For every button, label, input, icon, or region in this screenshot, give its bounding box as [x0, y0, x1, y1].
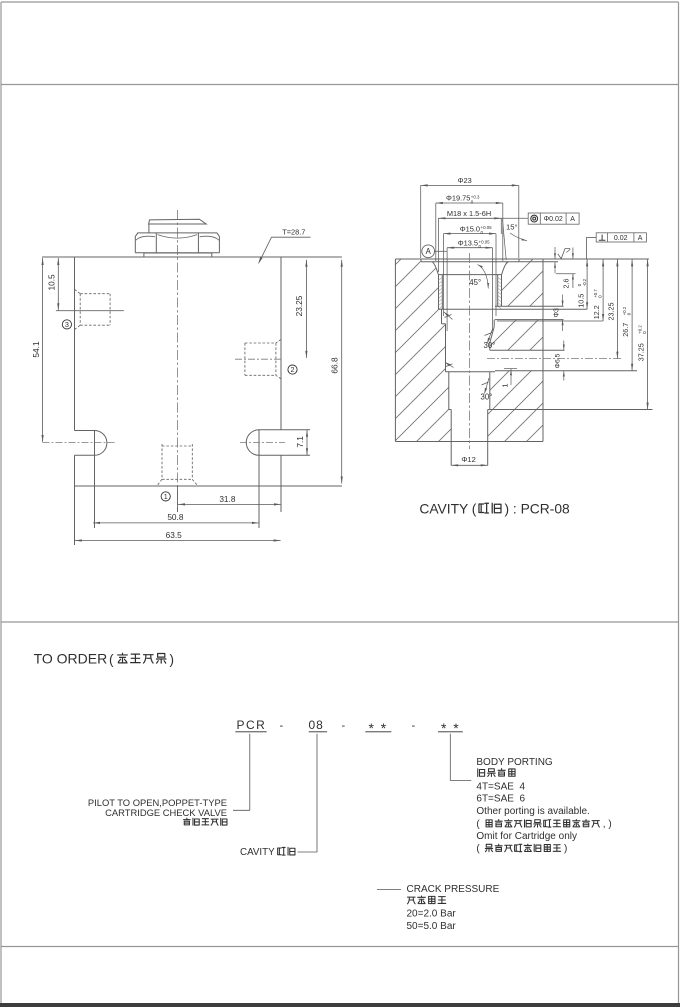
svg-text:30°: 30° [484, 341, 496, 350]
svg-text:) : PCR-08: ) : PCR-08 [505, 502, 570, 517]
svg-text:2.6: 2.6 [561, 279, 570, 289]
svg-text:CAVITY (: CAVITY ( [419, 502, 476, 517]
svg-text:-0.2: -0.2 [582, 278, 587, 286]
svg-text:2: 2 [291, 365, 295, 374]
svg-text:CARTRIDGE CHECK VALVE: CARTRIDGE CHECK VALVE [105, 807, 227, 818]
svg-text:Φ3: Φ3 [553, 308, 560, 318]
svg-text:1: 1 [164, 492, 168, 501]
svg-text:66.8: 66.8 [330, 357, 340, 374]
svg-text:12.2: 12.2 [592, 305, 601, 319]
svg-text:Φ19.75: Φ19.75 [446, 194, 470, 203]
svg-text:A: A [426, 247, 432, 256]
svg-text:A: A [570, 216, 575, 223]
svg-text:Φ0.02: Φ0.02 [544, 216, 563, 223]
svg-text:10.5: 10.5 [576, 294, 585, 308]
svg-text:*: * [441, 720, 447, 736]
svg-text:50=5.0 Bar: 50=5.0 Bar [407, 921, 457, 932]
svg-text:PCR: PCR [237, 718, 267, 732]
svg-text:23.25: 23.25 [294, 295, 304, 316]
svg-text:15°: 15° [506, 223, 517, 232]
svg-text:1: 1 [501, 384, 510, 388]
svg-text:30°: 30° [481, 393, 493, 402]
svg-text:CRACK PRESSURE: CRACK PRESSURE [407, 884, 500, 895]
svg-text:3: 3 [65, 320, 69, 329]
svg-text:Omit for Cartridge only: Omit for Cartridge only [476, 831, 577, 842]
svg-text:Other porting is available.: Other porting is available. [476, 806, 589, 817]
svg-text:A: A [638, 235, 643, 242]
svg-text:-: - [342, 720, 346, 732]
svg-text:*: * [453, 720, 459, 736]
svg-text:7.1: 7.1 [295, 436, 305, 448]
svg-text:): ) [564, 843, 567, 854]
svg-text:Φ23: Φ23 [458, 176, 472, 185]
svg-text:10.5: 10.5 [47, 274, 57, 291]
svg-text:BODY PORTING: BODY PORTING [476, 757, 553, 768]
svg-text:CAVITY: CAVITY [240, 847, 275, 858]
svg-text:63.5: 63.5 [166, 530, 183, 540]
svg-text:*: * [381, 720, 387, 736]
svg-text:, ): , ) [603, 819, 612, 830]
svg-text:26.7: 26.7 [621, 323, 630, 337]
svg-text:*: * [369, 720, 375, 736]
svg-text:TO ORDER: TO ORDER [34, 651, 108, 667]
svg-text:): ) [170, 652, 175, 667]
svg-text:-: - [412, 720, 416, 732]
svg-text:0.02: 0.02 [614, 235, 628, 242]
svg-text:08: 08 [309, 718, 324, 732]
svg-text:23.25: 23.25 [606, 303, 615, 321]
svg-text:37.25: 37.25 [637, 343, 646, 361]
svg-text:M18 x 1.5-6H: M18 x 1.5-6H [447, 209, 491, 218]
svg-text:Φ12: Φ12 [461, 455, 476, 464]
svg-text:-: - [280, 720, 284, 732]
svg-text:Φ13.5: Φ13.5 [458, 239, 478, 248]
svg-text:(: ( [109, 652, 114, 667]
svg-text:31.8: 31.8 [219, 494, 236, 504]
svg-text:20=2.0 Bar: 20=2.0 Bar [407, 909, 457, 920]
svg-text:Φ15.0: Φ15.0 [460, 224, 480, 233]
svg-text:4T=SAE 4: 4T=SAE 4 [476, 781, 525, 792]
svg-text:45°: 45° [469, 278, 481, 287]
svg-text:50.8: 50.8 [167, 512, 184, 522]
svg-text:T=28.7: T=28.7 [282, 228, 305, 237]
svg-text:54.1: 54.1 [31, 341, 41, 358]
svg-text:Φ6.5: Φ6.5 [555, 353, 562, 368]
svg-text:6T=SAE 6: 6T=SAE 6 [476, 794, 525, 805]
